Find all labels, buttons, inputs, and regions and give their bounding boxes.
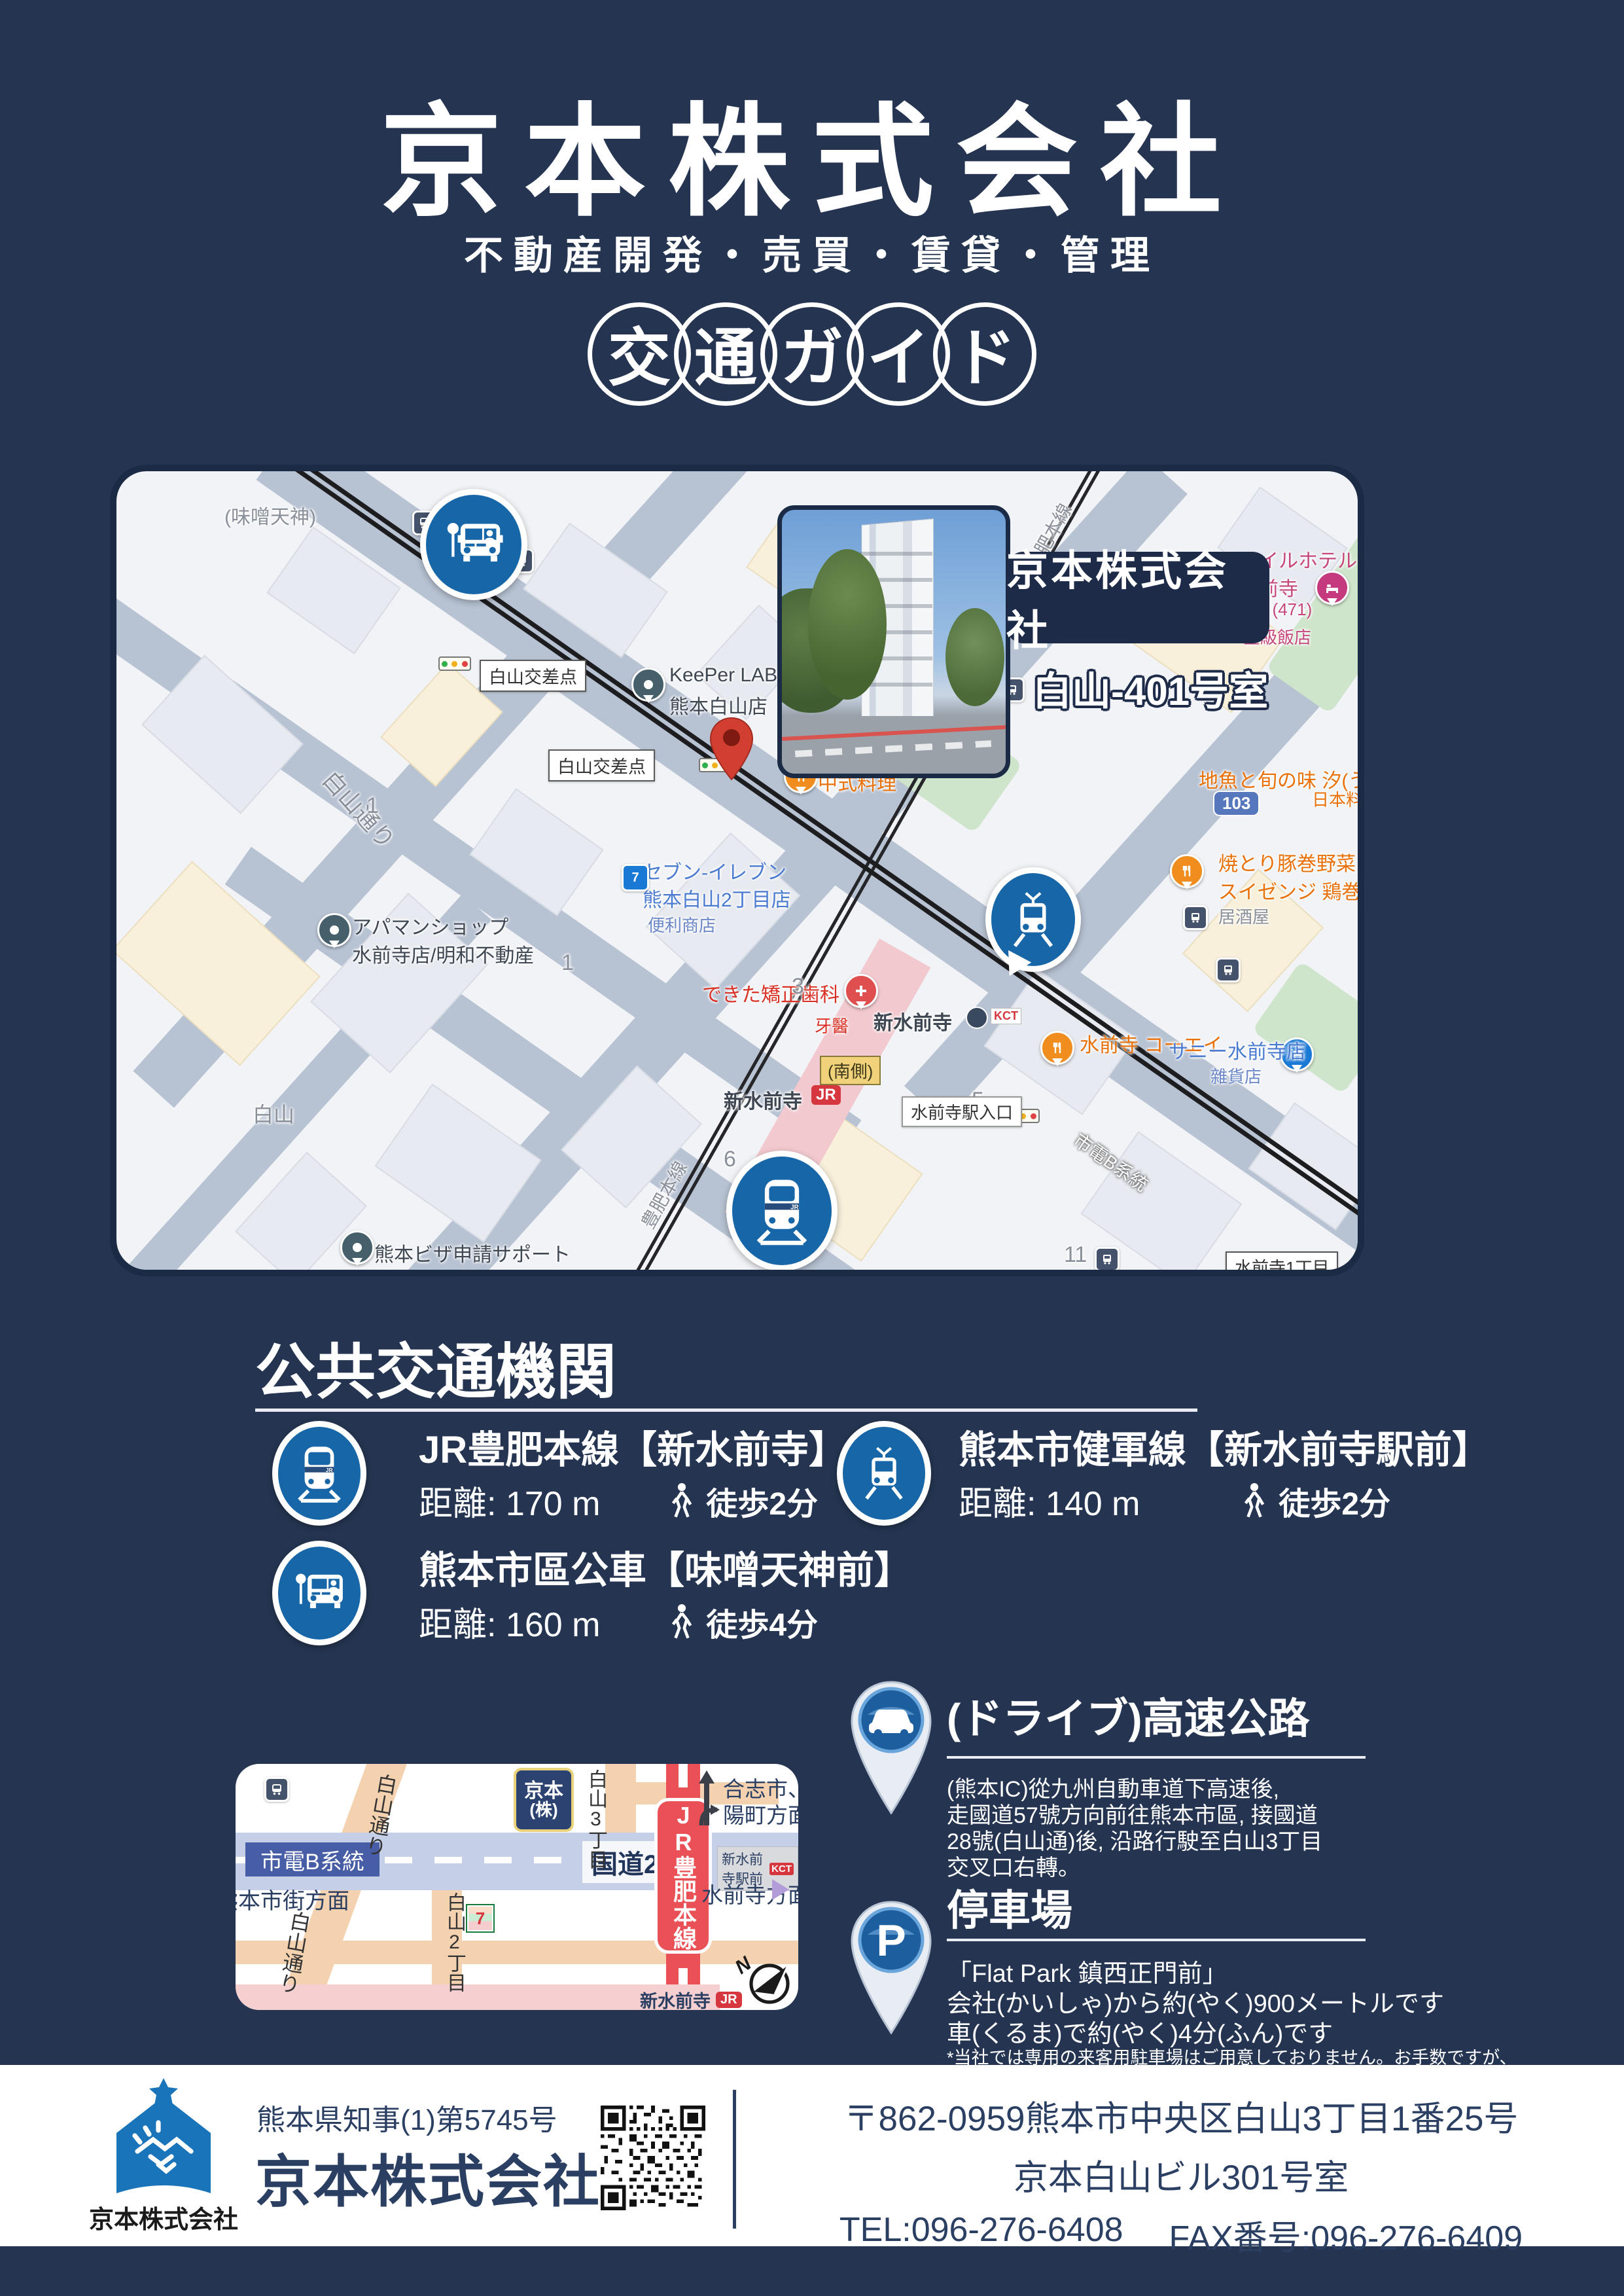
office-pin-icon bbox=[340, 1230, 374, 1265]
footer-contact: 〒862-0959熊本市中央区白山3丁目1番25号 京本白山ビル301号室 TE… bbox=[752, 2091, 1610, 2259]
transit-line-name: JR豊肥本線【新水前寺】 bbox=[419, 1419, 847, 1474]
svg-text:JR: JR bbox=[326, 1467, 333, 1473]
building-address: 京本白山ビル301号室 bbox=[752, 2150, 1610, 2200]
footer-divider bbox=[733, 2090, 736, 2229]
seven-eleven-icon: 7 bbox=[622, 864, 649, 891]
carwash-pin-icon bbox=[631, 668, 665, 702]
compass-icon: N bbox=[735, 1952, 798, 2007]
map-label: 焼とり豚巻野菜 bbox=[1218, 848, 1356, 876]
flyer-page: 京本株式会社 不動産開発・売買・賃貸・管理 交通ガイド bbox=[0, 0, 1624, 2296]
svg-text:JR: JR bbox=[790, 1204, 799, 1211]
station-label: 新水前寺 JR bbox=[640, 1987, 742, 2010]
map-label: 牙醫 bbox=[815, 1013, 849, 1037]
district-label: 白山2丁目 bbox=[440, 1892, 468, 1992]
direction-label: 陽町方面 bbox=[723, 1798, 798, 1829]
tram-stop-icon bbox=[1095, 1247, 1120, 1272]
bus-icon bbox=[420, 489, 527, 600]
station-icon bbox=[966, 1007, 988, 1029]
hotel-pin-icon bbox=[1315, 571, 1349, 605]
route-103-badge: 103 bbox=[1213, 791, 1260, 816]
photo-tree bbox=[808, 549, 887, 700]
intersection-label: 水前寺駅入口 bbox=[902, 1096, 1022, 1127]
section-divider bbox=[947, 1939, 1366, 1941]
restaurant-pin-icon bbox=[1040, 1031, 1074, 1065]
page-subtitle: 不動産開発・売買・賃貸・管理 bbox=[0, 224, 1624, 281]
drive-section-title: (ドライブ)高速公路 bbox=[947, 1685, 1310, 1746]
map-label: 便利商店 bbox=[648, 912, 716, 937]
area-map: 白山通り 市電B系統 豊肥本線 豊肥本線 bbox=[110, 465, 1364, 1276]
company-logo bbox=[98, 2078, 229, 2202]
parking-section-title: 停車場 bbox=[947, 1877, 1072, 1937]
license-number: 熊本県知事(1)第5745号 bbox=[256, 2096, 557, 2138]
map-label: 熊本ビザ申請サポート bbox=[374, 1238, 571, 1267]
footer-company-name: 京本株式会社 bbox=[255, 2136, 601, 2217]
room-number-label: 白山-401号室 bbox=[1033, 660, 1268, 717]
map-label: オフィス 行政書士 井上... bbox=[374, 1265, 597, 1276]
map-label: 居酒屋 bbox=[1218, 904, 1269, 928]
up-turn-arrow-icon bbox=[694, 1768, 720, 1828]
map-label: 熊本白山2丁目店 bbox=[643, 884, 791, 912]
shop-pin-icon bbox=[317, 913, 351, 947]
map-label: セブン-イレブン bbox=[643, 856, 786, 885]
tram-stop-icon bbox=[1183, 905, 1208, 930]
distance-value: 距離: 140 m bbox=[959, 1476, 1140, 1525]
walker-icon bbox=[669, 1482, 694, 1520]
distance-value: 距離: 160 m bbox=[419, 1597, 600, 1646]
south-side-label: (南側) bbox=[820, 1056, 881, 1085]
tel-number: TEL:096-276-6408 bbox=[839, 2210, 1123, 2259]
train-icon: JR bbox=[726, 1151, 838, 1271]
intersection-label: 白山交差点 bbox=[548, 749, 655, 781]
fax-number: FAX番号:096-276-6409 bbox=[1169, 2210, 1523, 2259]
transit-section-title: 公共交通機関 bbox=[255, 1323, 616, 1410]
bus-stop-icon bbox=[264, 1777, 289, 1802]
badge-char: ド bbox=[933, 302, 1036, 406]
map-label: (味噌天神) bbox=[224, 501, 316, 529]
map-label: 水前寺店/明和不動産 bbox=[352, 939, 534, 968]
train-icon: JR bbox=[272, 1421, 366, 1526]
traffic-guide-badge: 交通ガイド bbox=[0, 302, 1624, 406]
qr-code bbox=[601, 2106, 705, 2210]
transit-line-name: 熊本市區公車【味噌天神前】 bbox=[419, 1539, 912, 1594]
photo-tree bbox=[945, 608, 1004, 706]
map-label: サニー水前寺店 bbox=[1169, 1035, 1306, 1064]
footer: 京本株式会社 熊本県知事(1)第5745号 京本株式会社 bbox=[0, 2065, 1624, 2246]
bus-icon bbox=[272, 1541, 366, 1645]
distance-value: 距離: 170 m bbox=[419, 1476, 600, 1525]
svg-text:P: P bbox=[876, 1916, 906, 1965]
walk-time: 徒歩2分 bbox=[1279, 1478, 1390, 1524]
map-label: アパマンショップ bbox=[352, 911, 508, 940]
parking-pin-icon: P bbox=[849, 1899, 933, 2036]
block-number: 3 bbox=[792, 974, 804, 999]
walk-time: 徒歩2分 bbox=[706, 1478, 818, 1524]
block-number: 11 bbox=[1064, 1242, 1087, 1268]
walker-icon bbox=[669, 1603, 694, 1641]
building-photo bbox=[777, 505, 1010, 778]
logo-caption: 京本株式会社 bbox=[39, 2199, 288, 2235]
transit-line-name: 熊本市健軍線【新水前寺駅前】 bbox=[959, 1419, 1490, 1474]
tram-stop-icon bbox=[1216, 958, 1241, 982]
direction-label: 熊本市街方面 bbox=[236, 1883, 349, 1915]
section-divider bbox=[947, 1756, 1366, 1759]
traffic-light-icon bbox=[438, 656, 471, 671]
map-label: KeePer LABO bbox=[669, 664, 792, 687]
kct-badge: KCT bbox=[991, 1008, 1021, 1024]
road bbox=[236, 1941, 798, 1964]
tram-icon bbox=[985, 867, 1081, 972]
kct-badge: KCT bbox=[769, 1863, 794, 1875]
tram-icon bbox=[837, 1421, 931, 1526]
kyomoto-map-badge: 京本 (株) bbox=[514, 1768, 574, 1832]
postal-address: 〒862-0959熊本市中央区白山3丁目1番25号 bbox=[752, 2091, 1610, 2141]
district-label: 白山3丁目 bbox=[581, 1769, 610, 1869]
map-label: 日本料理 bbox=[1312, 787, 1364, 811]
right-arrow-icon bbox=[772, 1879, 798, 1900]
intersection-label: 白山交差点 bbox=[480, 660, 586, 692]
dental-cross-pin-icon bbox=[844, 974, 878, 1008]
car-pin-icon bbox=[849, 1679, 933, 1816]
block-number: 1 bbox=[366, 793, 379, 819]
page-title: 京本株式会社 bbox=[0, 63, 1624, 240]
map-label: 白山 bbox=[253, 1098, 294, 1128]
seven-eleven-icon: 7 bbox=[466, 1904, 495, 1933]
map-label: スイゼンジ 鶏巻 bbox=[1218, 876, 1361, 905]
mini-map: 市電B系統 国道28号 新水前寺駅前 KCT JR豊肥本線 新水前寺 JR 白山… bbox=[236, 1764, 798, 2010]
map-label: できた矯正歯科 bbox=[702, 978, 839, 1007]
station-label: 新水前寺 bbox=[724, 1085, 802, 1114]
section-divider bbox=[255, 1408, 1197, 1412]
map-label: 熊本白山店 bbox=[669, 691, 768, 719]
restaurant-pin-icon bbox=[1170, 854, 1204, 888]
district-label: 水前寺1丁目 bbox=[1226, 1251, 1338, 1276]
walker-icon bbox=[1242, 1482, 1267, 1520]
jr-badge: JR bbox=[811, 1085, 841, 1105]
station-label: 新水前寺 bbox=[874, 1007, 952, 1035]
walk-time: 徒歩4分 bbox=[706, 1599, 818, 1645]
map-label: 雜貨店 bbox=[1210, 1064, 1262, 1088]
company-name-badge: 京本株式会社 bbox=[1006, 552, 1269, 643]
block-number: 6 bbox=[724, 1147, 736, 1172]
destination-map-pin-icon bbox=[708, 717, 755, 785]
block-number: 1 bbox=[561, 950, 574, 976]
